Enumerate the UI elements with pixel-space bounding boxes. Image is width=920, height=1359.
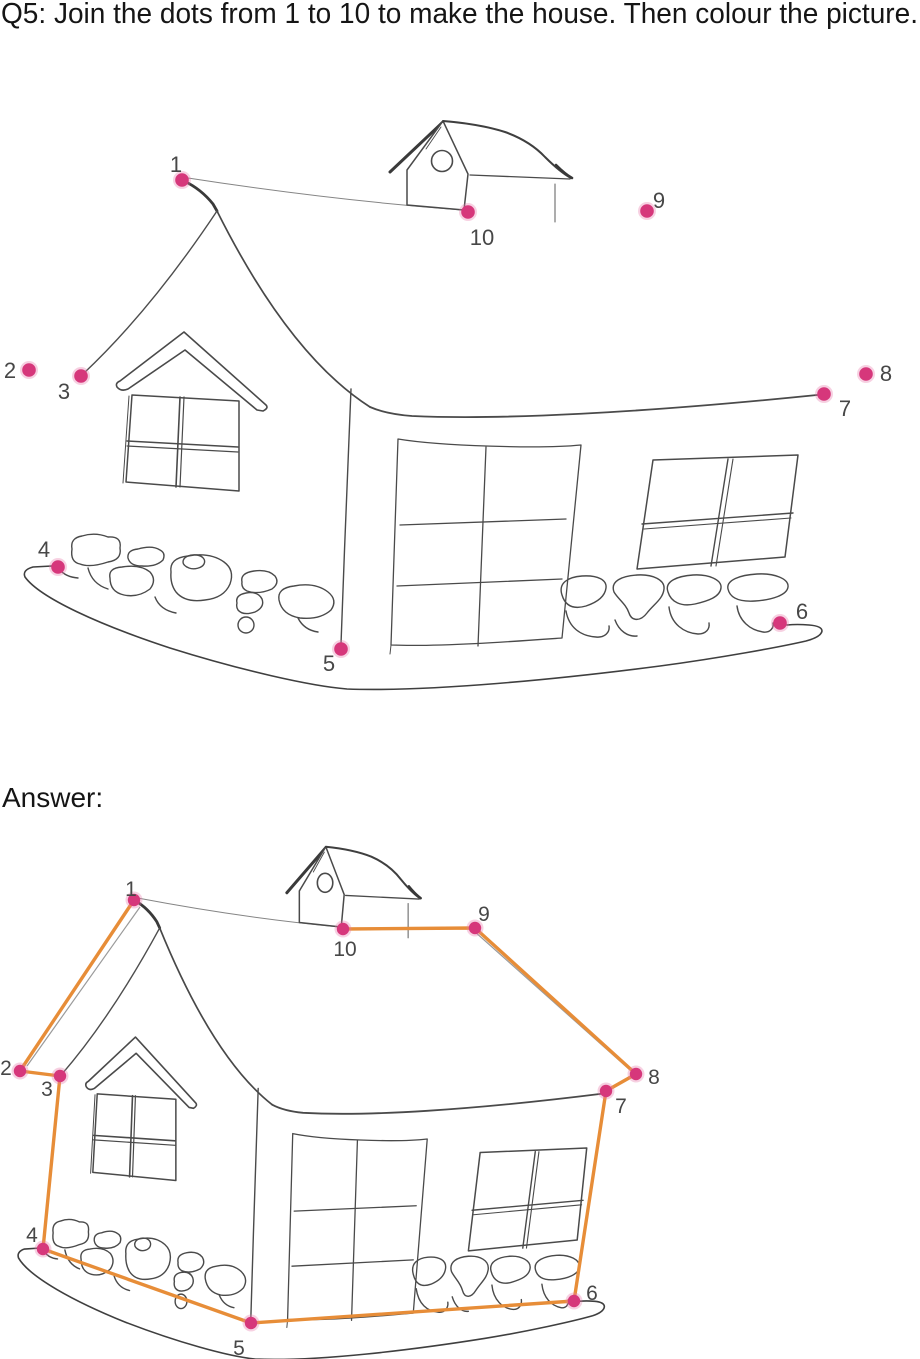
svg-text:2: 2 <box>4 358 16 383</box>
svg-text:4: 4 <box>38 537 50 562</box>
svg-text:3: 3 <box>58 379 70 404</box>
svg-text:5: 5 <box>323 651 335 676</box>
svg-text:1: 1 <box>170 152 182 177</box>
svg-text:7: 7 <box>839 396 851 421</box>
svg-text:7: 7 <box>615 1095 627 1118</box>
svg-text:3: 3 <box>41 1078 53 1101</box>
svg-text:8: 8 <box>648 1066 660 1089</box>
svg-text:9: 9 <box>653 188 665 213</box>
svg-text:1: 1 <box>125 878 137 901</box>
svg-text:2: 2 <box>0 1057 12 1080</box>
svg-text:6: 6 <box>796 599 808 624</box>
svg-text:5: 5 <box>233 1337 245 1359</box>
svg-text:9: 9 <box>478 903 490 926</box>
svg-text:10: 10 <box>333 938 356 961</box>
svg-text:8: 8 <box>880 361 892 386</box>
svg-text:10: 10 <box>470 225 494 250</box>
svg-text:Q5: Join the dots from 1 to 10: Q5: Join the dots from 1 to 10 to make t… <box>1 0 918 30</box>
svg-text:Answer:: Answer: <box>2 782 103 813</box>
svg-text:4: 4 <box>26 1224 38 1247</box>
svg-text:6: 6 <box>586 1282 598 1305</box>
